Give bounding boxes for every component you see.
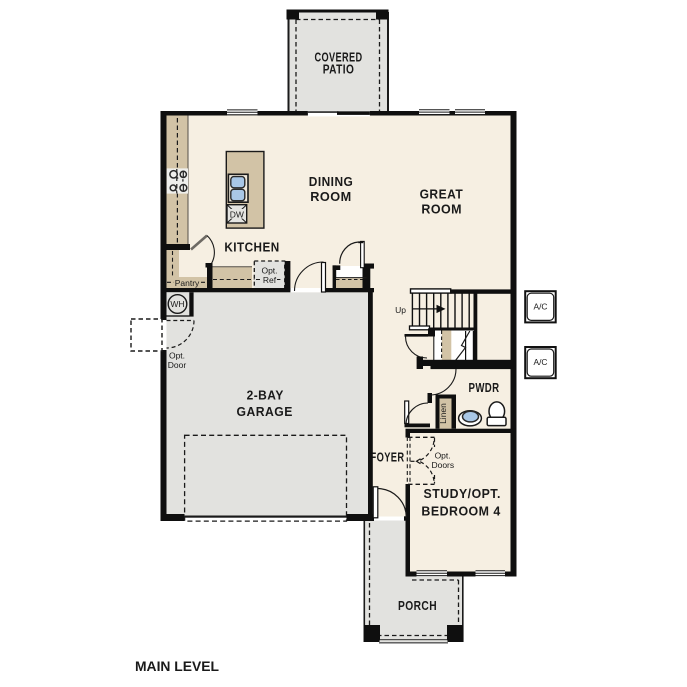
svg-text:Opt.: Opt. xyxy=(169,351,185,361)
svg-text:BEDROOM 4: BEDROOM 4 xyxy=(421,503,501,518)
svg-text:PORCH: PORCH xyxy=(398,598,437,613)
svg-text:STUDY/OPT.: STUDY/OPT. xyxy=(424,486,501,501)
svg-text:Up: Up xyxy=(395,305,406,315)
svg-text:Linen: Linen xyxy=(438,403,448,424)
svg-text:FOYER: FOYER xyxy=(371,450,405,465)
svg-text:MAIN LEVEL: MAIN LEVEL xyxy=(135,659,219,674)
svg-text:Opt.: Opt. xyxy=(261,266,277,276)
svg-text:GREAT: GREAT xyxy=(420,186,464,201)
svg-text:DINING: DINING xyxy=(309,174,354,189)
svg-text:Door: Door xyxy=(168,360,187,370)
svg-text:Ref: Ref xyxy=(263,275,277,285)
svg-text:DW: DW xyxy=(230,209,244,219)
svg-text:PATIO: PATIO xyxy=(323,62,355,77)
svg-text:ROOM: ROOM xyxy=(310,189,352,204)
svg-text:GARAGE: GARAGE xyxy=(237,404,293,419)
svg-text:Pantry: Pantry xyxy=(175,278,200,288)
svg-text:A/C: A/C xyxy=(534,301,548,311)
svg-text:Opt.: Opt. xyxy=(435,451,451,461)
svg-text:2-BAY: 2-BAY xyxy=(247,387,284,402)
svg-text:KITCHEN: KITCHEN xyxy=(224,239,279,254)
svg-text:A/C: A/C xyxy=(534,357,548,367)
svg-text:ROOM: ROOM xyxy=(421,201,462,216)
svg-text:WH: WH xyxy=(170,299,184,309)
svg-text:Doors: Doors xyxy=(431,460,454,470)
svg-text:PWDR: PWDR xyxy=(469,380,500,395)
